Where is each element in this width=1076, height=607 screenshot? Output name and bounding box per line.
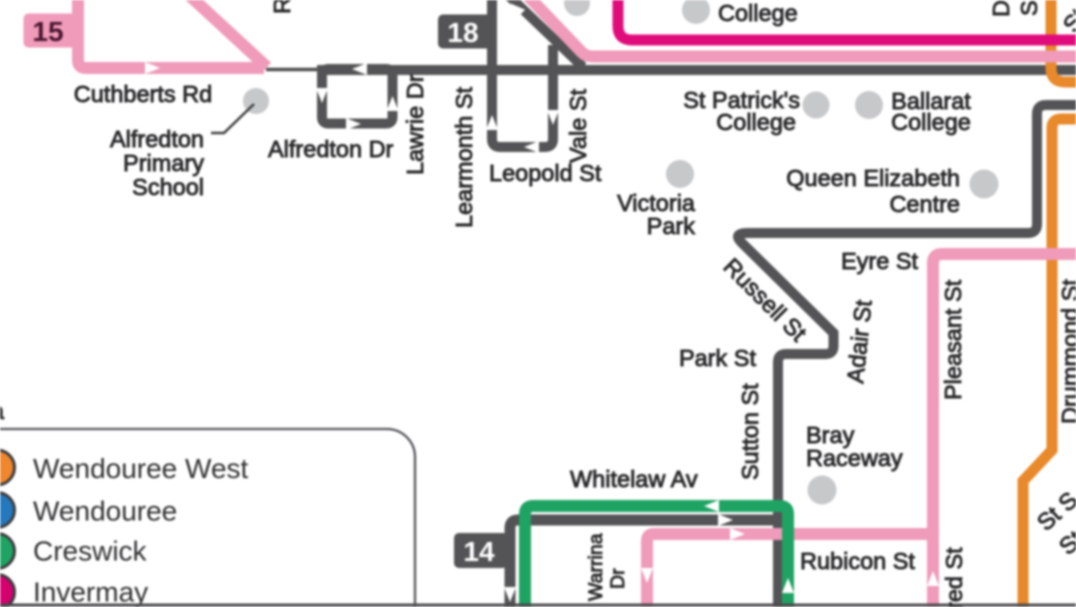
svg-text:Primary: Primary — [123, 150, 204, 176]
svg-text:Queen Elizabeth: Queen Elizabeth — [786, 165, 960, 191]
svg-text:Wendouree: Wendouree — [33, 496, 177, 527]
svg-text:Drummond St: Drummond St — [1057, 279, 1076, 424]
svg-text:red St: red St — [941, 547, 967, 607]
svg-text:Cuthberts Rd: Cuthberts Rd — [74, 81, 212, 107]
svg-text:Park St: Park St — [679, 345, 757, 371]
svg-text:Dr: Dr — [607, 568, 629, 589]
svg-text:Centre: Centre — [889, 191, 960, 217]
svg-text:Learmonth St: Learmonth St — [451, 86, 477, 228]
svg-text:Rubicon St: Rubicon St — [800, 548, 915, 574]
svg-text:Eyre St: Eyre St — [841, 248, 919, 274]
svg-text:Park: Park — [647, 213, 696, 239]
svg-text:Warrina: Warrina — [585, 533, 607, 601]
svg-text:Whitelaw Av: Whitelaw Av — [570, 466, 698, 492]
svg-text:Creswick: Creswick — [33, 536, 148, 567]
svg-text:Lawrie Dr: Lawrie Dr — [402, 74, 428, 175]
svg-text:Alfredton: Alfredton — [110, 126, 204, 152]
svg-text:Sutton St: Sutton St — [737, 383, 763, 480]
svg-text:College: College — [716, 109, 796, 135]
svg-text:D: D — [988, 0, 1014, 17]
svg-text:Pleasant St: Pleasant St — [940, 279, 966, 400]
svg-text:Wendouree West: Wendouree West — [33, 453, 249, 484]
svg-text:14: 14 — [463, 536, 495, 567]
svg-text:Alfredton Dr: Alfredton Dr — [268, 136, 394, 162]
svg-text:S: S — [1016, 0, 1042, 16]
svg-text:Raceway: Raceway — [806, 445, 903, 471]
svg-text:Invermay: Invermay — [33, 577, 148, 607]
svg-text:College: College — [718, 0, 798, 26]
svg-text:College: College — [891, 109, 971, 135]
svg-text:Vale St: Vale St — [565, 89, 591, 163]
svg-text:R: R — [269, 0, 295, 14]
svg-text:15: 15 — [32, 16, 63, 47]
svg-text:School: School — [132, 174, 204, 200]
svg-text:18: 18 — [447, 17, 478, 48]
